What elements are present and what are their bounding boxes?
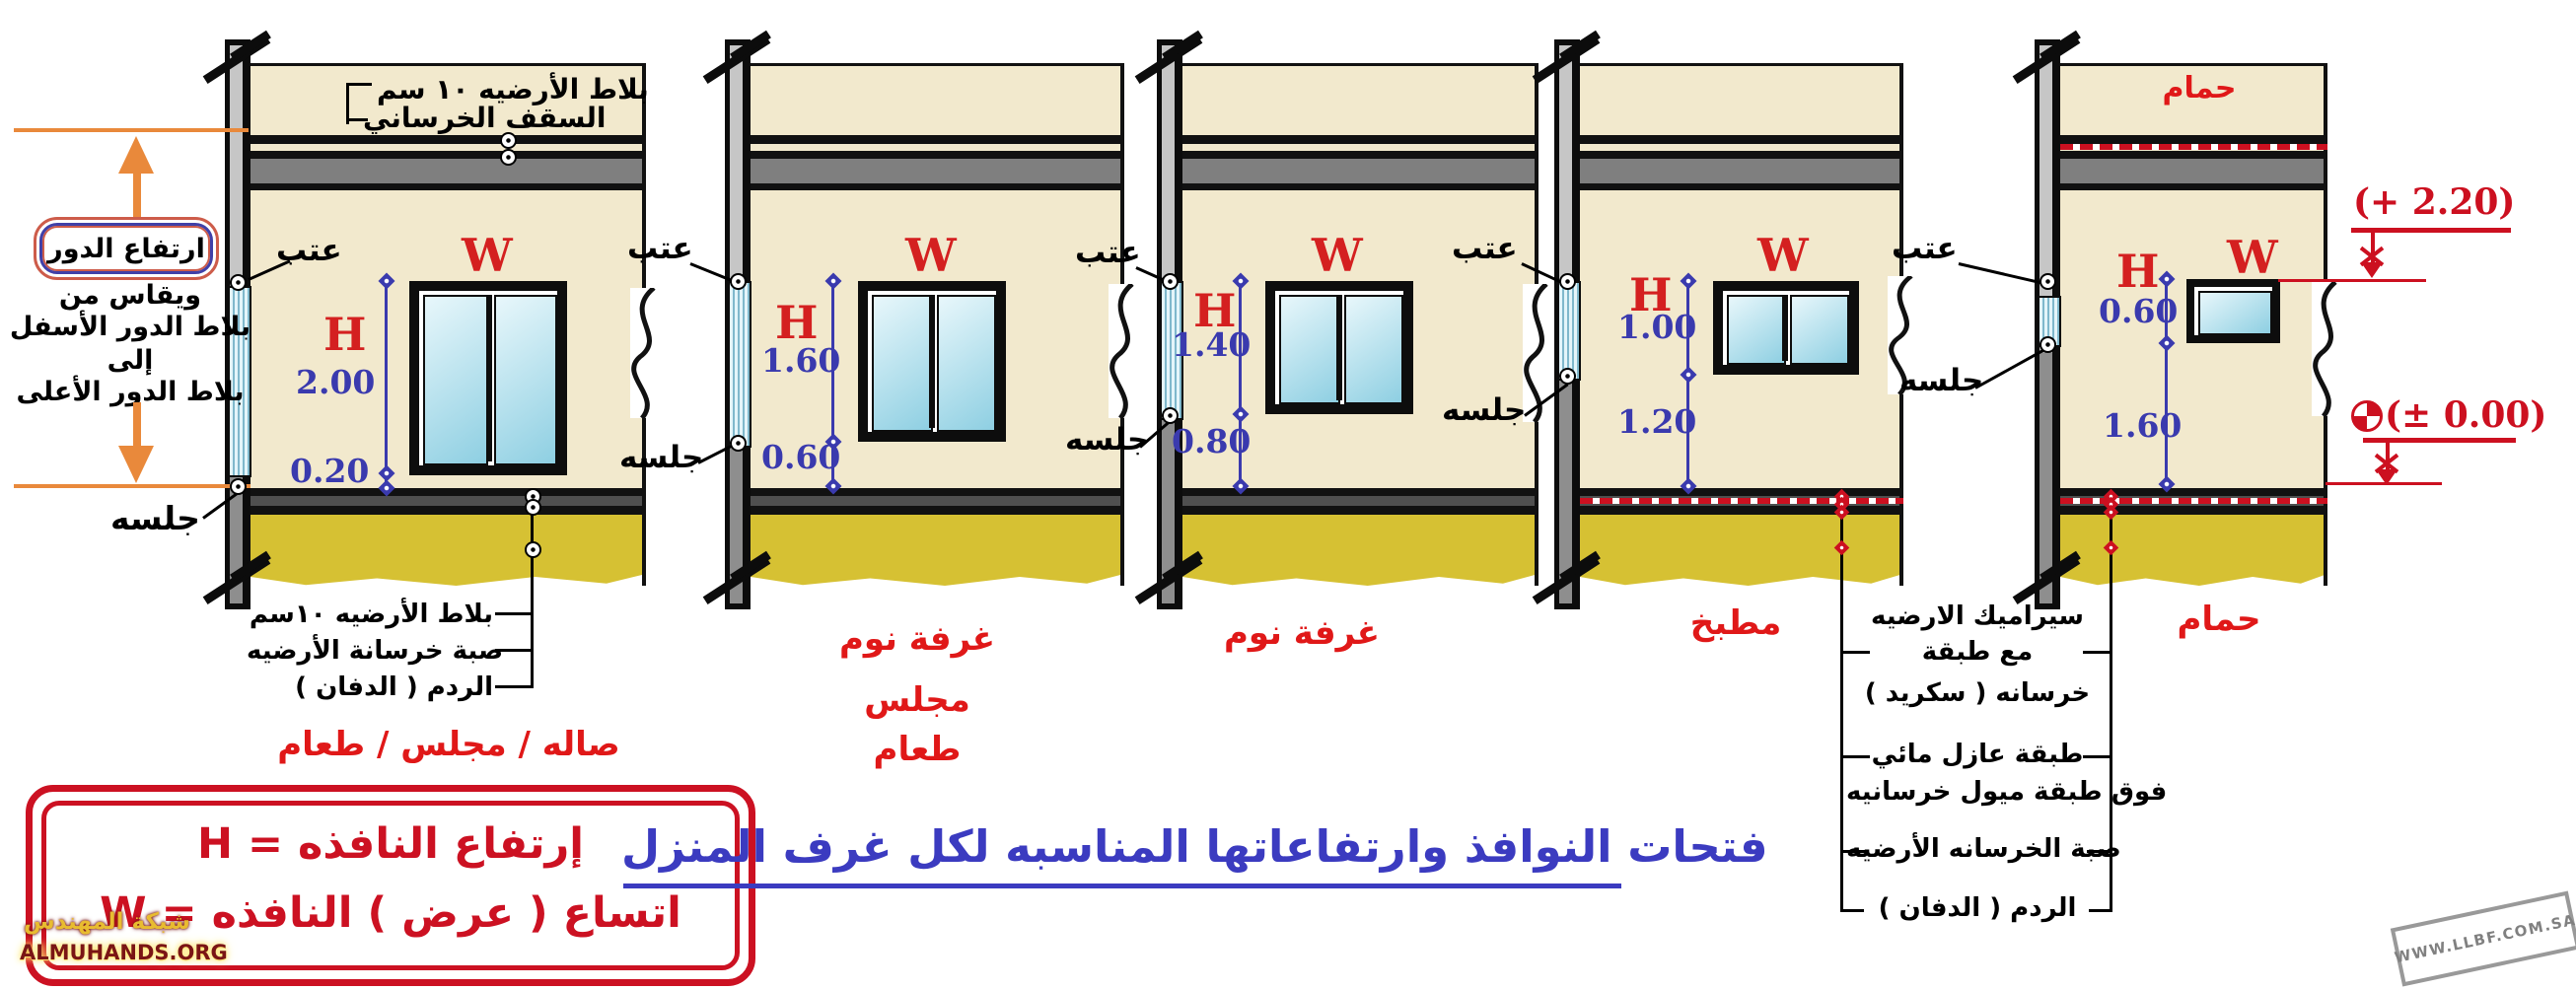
floor-height-box: ارتفاع الدور bbox=[34, 217, 219, 280]
s4-window bbox=[1713, 281, 1859, 375]
s3-lintel-marker bbox=[1162, 273, 1179, 290]
s4-width-label: W bbox=[1757, 229, 1809, 282]
lintel-elevation-value: (+ 2.20) bbox=[2353, 181, 2515, 223]
s4-ceiling-band bbox=[1580, 63, 1903, 138]
to-note: إلى bbox=[8, 345, 252, 376]
storey-bottom-level-line bbox=[14, 484, 250, 488]
layer-backfill: الردم ( الدفان ) bbox=[1846, 893, 2109, 923]
s3-sill-height-value: 0.80 bbox=[1172, 422, 1251, 460]
s4-sill-height-value: 1.20 bbox=[1617, 402, 1696, 441]
s3-window-mullion bbox=[1336, 295, 1342, 400]
almuhands-url-watermark: ALMUHANDS.ORG bbox=[20, 941, 228, 964]
s1-sill-marker bbox=[230, 478, 247, 495]
s1-fill-layer bbox=[250, 515, 646, 589]
s1-room-label: صاله / مجلس / طعام bbox=[251, 725, 646, 764]
s1-window-pane-right bbox=[494, 295, 557, 465]
s2-window-mullion bbox=[929, 295, 935, 428]
storey-arrow-stem-top bbox=[133, 170, 141, 221]
s1-sill-height-value: 0.20 bbox=[290, 452, 369, 490]
s4-waterproofing-dashed-line bbox=[1580, 498, 1903, 504]
s2-width-label: W bbox=[905, 229, 957, 282]
s2-sill-marker bbox=[730, 435, 747, 452]
layer-waterproofing: طبقة عازل مائي bbox=[1846, 740, 2109, 769]
s1-window-pane-left bbox=[423, 295, 488, 465]
s5-waterproofing-dashed-line bbox=[2060, 498, 2327, 504]
llbf-stamp-watermark: WWW.LLBF.COM.SA bbox=[2391, 891, 2576, 987]
s1-dim-line bbox=[385, 281, 388, 488]
s3-window bbox=[1265, 281, 1413, 414]
s3-room-label: غرفة نوم bbox=[1183, 613, 1420, 653]
s2-lintel-label: عتب bbox=[627, 231, 693, 266]
s2-window-pane-left bbox=[872, 295, 933, 432]
s5-window-pane bbox=[2198, 291, 2272, 335]
s1-width-label: W bbox=[462, 229, 513, 282]
s1-floor-notes-bracket bbox=[531, 509, 534, 688]
s1-height-label: H bbox=[323, 308, 366, 361]
s5-window bbox=[2186, 279, 2280, 343]
s4-window-section-hatch bbox=[1557, 281, 1581, 381]
s4-fill-layer bbox=[1580, 515, 1903, 589]
s5-lintel-marker bbox=[2039, 273, 2056, 290]
s2-room-label: طعام bbox=[799, 730, 1036, 769]
datum-benchmark-icon bbox=[2351, 400, 2383, 432]
storey-arrow-up-icon bbox=[118, 136, 154, 174]
s4-window-pane-right bbox=[1790, 295, 1849, 365]
s1-window-height-value: 2.00 bbox=[296, 363, 375, 401]
s4-window-pane-left bbox=[1727, 295, 1786, 365]
layer-floor-concrete: صبة الخرسانه الأرضيه bbox=[1846, 834, 2109, 864]
s2-room-label: غرفة نوم bbox=[799, 619, 1036, 659]
s2-window-pane-right bbox=[937, 295, 996, 432]
s1-lintel-marker bbox=[230, 274, 247, 291]
s2-window-section-hatch bbox=[728, 281, 751, 448]
s2-window bbox=[858, 281, 1006, 442]
s2-floor-slab bbox=[751, 488, 1124, 515]
lintel-level-line bbox=[2278, 279, 2426, 282]
s4-top-slab bbox=[1580, 135, 1903, 190]
s4-lintel-marker bbox=[1559, 273, 1576, 290]
s5-width-label: W bbox=[2227, 231, 2278, 284]
s2-fill-layer bbox=[751, 515, 1124, 589]
layer-ceramic: سيراميك الارضيه bbox=[1846, 601, 2109, 631]
concrete-ceiling-note: السقف الخرساني bbox=[363, 102, 606, 134]
s5-room-label: حمام bbox=[2111, 600, 2327, 639]
s3-ceiling-band bbox=[1182, 63, 1538, 138]
s3-floor-slab bbox=[1182, 488, 1538, 515]
s5-fill-layer bbox=[2060, 515, 2327, 589]
slab-marker-circle bbox=[500, 149, 517, 166]
diagram-title: فتحات النوافذ وارتفاعاتها المناسبه لكل غ… bbox=[621, 820, 1627, 873]
s5-upper-waterproofing-dashed-line bbox=[2060, 144, 2327, 150]
lintel-elevation-datum-line bbox=[2351, 228, 2511, 233]
s1-floor-concrete-note: صبة خرسانة الأرضيه bbox=[247, 636, 493, 666]
s5-wall-break-icon bbox=[2310, 282, 2343, 416]
s3-lintel-label: عتب bbox=[1075, 235, 1141, 270]
s1-floor-note-tick-1 bbox=[495, 612, 533, 615]
s3-top-slab bbox=[1182, 135, 1538, 190]
layer-with-screed: مع طبقة bbox=[1846, 637, 2109, 667]
s1-top-slab bbox=[250, 135, 646, 190]
s1-sill-label: جلسه bbox=[110, 499, 200, 537]
s2-wall-break-icon bbox=[1107, 284, 1140, 418]
s1-floor-slab bbox=[250, 488, 646, 515]
s5-lintel-label: عتب bbox=[1892, 231, 1958, 266]
s5-sill-label: جلسه bbox=[1899, 363, 1983, 398]
floor-height-box-label: ارتفاع الدور bbox=[39, 223, 213, 274]
slab-note-tick-1 bbox=[346, 83, 372, 86]
s2-lintel-marker bbox=[730, 273, 747, 290]
s5-lintel-pointer bbox=[1959, 262, 2041, 284]
s3-window-height-value: 1.40 bbox=[1172, 325, 1251, 364]
lower-floor-tile-note: بلاط الدور الأسفل bbox=[8, 312, 252, 342]
s3-window-pane-left bbox=[1279, 295, 1340, 404]
s5-upper-room-label: حمام bbox=[2101, 71, 2298, 106]
s2-ceiling-band bbox=[751, 63, 1124, 138]
datum-elevation-value: (± 0.00) bbox=[2385, 394, 2546, 436]
s5-window-height-value: 0.60 bbox=[2099, 292, 2178, 330]
s5-height-label: H bbox=[2116, 245, 2159, 298]
measured-from-note: ويقاس من bbox=[8, 280, 252, 311]
s1-window-mullion bbox=[486, 295, 492, 461]
s3-fill-layer bbox=[1182, 515, 1538, 589]
upper-floor-tile-note: بلاط الدور الأعلى bbox=[8, 377, 252, 407]
s1-floor-layer-marker bbox=[525, 499, 541, 516]
s1-floor-layer-marker bbox=[525, 541, 541, 558]
s2-window-height-value: 1.60 bbox=[761, 341, 840, 380]
s3-sill-marker bbox=[1162, 407, 1179, 424]
s4-lintel-label: عتب bbox=[1452, 231, 1518, 266]
s3-sill-label: جلسه bbox=[1065, 422, 1149, 458]
s1-window bbox=[409, 281, 567, 475]
s1-wall-break-icon bbox=[628, 288, 662, 418]
layer-slope-concrete: فوق طبقة ميول خرسانيه bbox=[1846, 777, 2109, 807]
s4-window-height-value: 1.00 bbox=[1617, 308, 1696, 346]
s2-sill-label: جلسه bbox=[619, 440, 703, 475]
s5-sill-marker bbox=[2039, 336, 2056, 353]
s1-floor-note-tick-3 bbox=[495, 685, 533, 688]
slab-marker-circle bbox=[500, 132, 517, 149]
s4-window-mullion bbox=[1782, 295, 1788, 361]
storey-arrow-stem-bottom bbox=[133, 402, 141, 448]
s3-width-label: W bbox=[1312, 229, 1363, 282]
s1-backfill-note: الردم ( الدفان ) bbox=[247, 672, 493, 702]
lintel-elevation-arrow-icon bbox=[2361, 262, 2383, 278]
datum-elevation-arrow-icon bbox=[2376, 469, 2397, 485]
almuhands-arabic-watermark: شبكة المهندس bbox=[24, 909, 190, 935]
storey-top-level-line bbox=[14, 128, 249, 132]
s2-top-slab bbox=[751, 135, 1124, 190]
s4-room-label: مطبخ bbox=[1627, 603, 1844, 643]
storey-arrow-down-icon bbox=[118, 446, 154, 483]
title-underline bbox=[623, 884, 1621, 888]
s1-floor-tiles-note: بلاط الأرضيه ١٠سم bbox=[247, 600, 493, 629]
s5-sill-height-value: 1.60 bbox=[2103, 406, 2182, 445]
layer-screed-concrete: خرسانه ( سكريد ) bbox=[1846, 678, 2109, 708]
s2-room-label: مجلس bbox=[799, 680, 1036, 720]
window-heights-diagram: ارتفاع الدور ويقاس من بلاط الدور الأسفل … bbox=[0, 0, 2576, 990]
s4-sill-marker bbox=[1559, 368, 1576, 385]
s3-window-pane-right bbox=[1344, 295, 1403, 404]
s4-sill-label: جلسه bbox=[1442, 392, 1526, 428]
